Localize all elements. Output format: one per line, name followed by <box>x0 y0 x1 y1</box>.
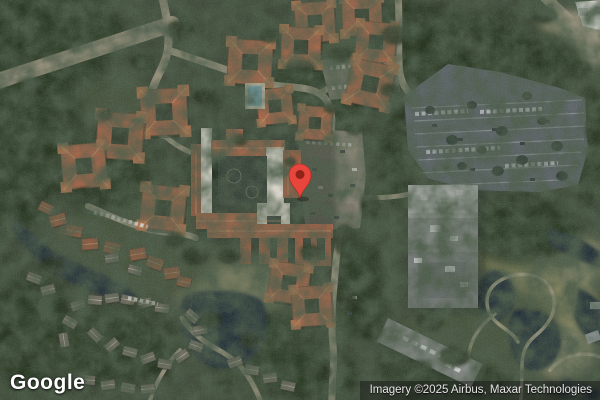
pin-dot <box>296 170 305 179</box>
marker-shadow <box>297 197 309 202</box>
google-watermark[interactable]: Google <box>10 371 85 395</box>
imagery-attribution: Imagery ©2025 Airbus, Maxar Technologies <box>360 381 600 400</box>
map-viewport[interactable]: Google Imagery ©2025 Airbus, Maxar Techn… <box>0 0 600 400</box>
satellite-imagery <box>0 0 600 400</box>
